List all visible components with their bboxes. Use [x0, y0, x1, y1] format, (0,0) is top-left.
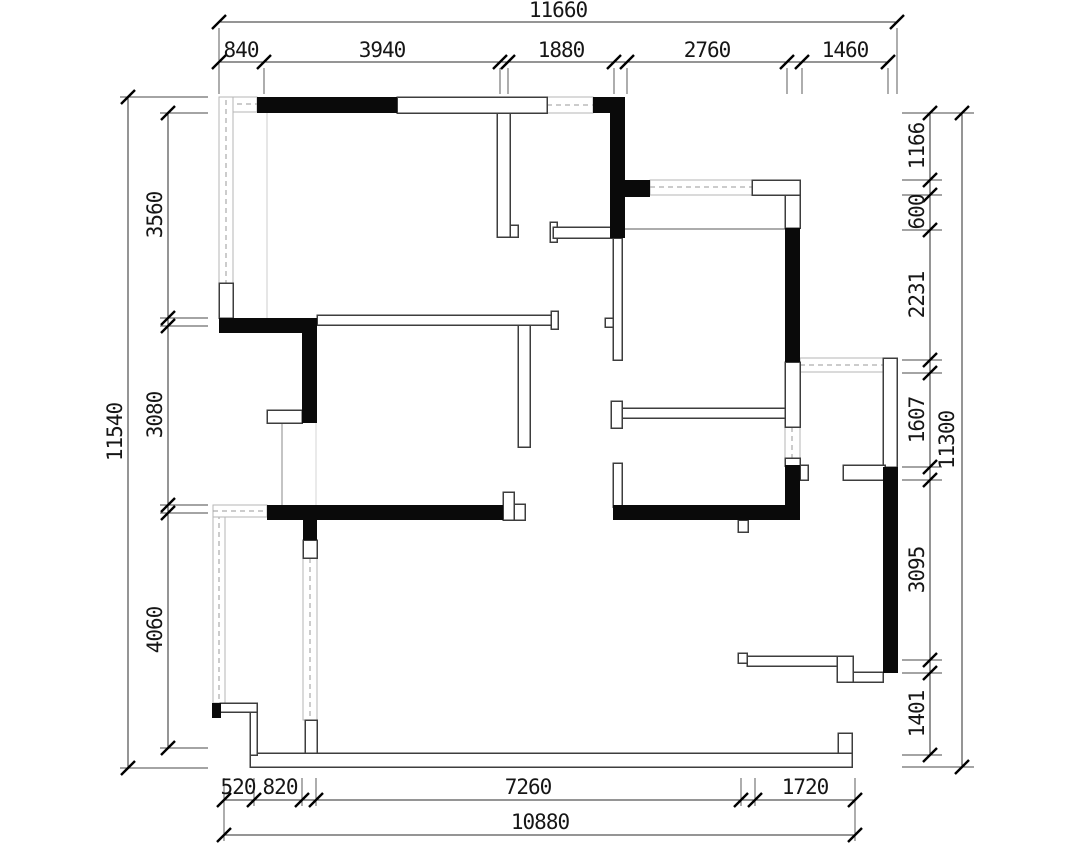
dim-label-bottom-overall: 10880 — [511, 810, 570, 834]
wall-black — [593, 97, 625, 113]
floor-plan-page: 11660 840 3940 1880 2760 1460 11540 3560… — [0, 0, 1080, 866]
dimension-left: 11540 3560 3080 4060 — [103, 90, 208, 775]
wall-white — [611, 401, 622, 428]
window-segment — [650, 180, 752, 195]
dim-label-left-overall: 11540 — [103, 403, 127, 462]
dim-label: 1460 — [822, 38, 869, 62]
wall-white — [785, 458, 800, 466]
dim-label: 840 — [224, 38, 259, 62]
wall-white — [837, 656, 853, 682]
dimension-right: 1166 600 2231 1607 3095 1401 11300 — [902, 106, 974, 774]
dimension-top: 11660 840 3940 1880 2760 1460 — [212, 0, 904, 94]
wall-white — [838, 733, 852, 755]
wall-white — [613, 463, 622, 507]
wall-white — [250, 712, 257, 755]
dim-label: 3940 — [359, 38, 406, 62]
dimension-bottom: 520 820 7260 1720 10880 — [217, 775, 862, 842]
wall-black — [613, 505, 798, 520]
wall-white — [220, 703, 257, 712]
wall-white — [843, 465, 885, 480]
dim-label: 2760 — [684, 38, 731, 62]
dim-label: 3095 — [905, 547, 929, 594]
wall-white — [497, 113, 510, 237]
wall-white — [785, 195, 800, 228]
wall-white — [303, 540, 317, 558]
dim-label: 2231 — [905, 271, 929, 318]
wall-black — [302, 333, 317, 423]
wall-white — [853, 672, 883, 682]
dim-label: 1401 — [905, 690, 929, 737]
dim-label: 7260 — [505, 775, 552, 799]
wall-black — [785, 228, 800, 362]
dim-label: 1607 — [905, 396, 929, 443]
dim-label: 4060 — [143, 606, 167, 653]
wall-black — [212, 703, 221, 718]
wall-black — [267, 505, 503, 520]
dim-label: 1166 — [905, 122, 929, 169]
floor-plan-canvas: 11660 840 3940 1880 2760 1460 11540 3560… — [0, 0, 1080, 866]
wall-white — [503, 492, 514, 520]
wall-white — [738, 653, 747, 663]
dim-label-right-overall: 11300 — [935, 411, 959, 470]
wall-white — [553, 227, 613, 238]
wall-black — [610, 113, 625, 238]
wall-black — [883, 467, 898, 673]
dim-label: 820 — [263, 775, 298, 799]
wall-white — [622, 408, 785, 418]
dim-label: 1720 — [782, 775, 829, 799]
wall-white — [518, 325, 530, 447]
wall-white — [305, 720, 317, 753]
wall-white — [551, 311, 558, 329]
wall-white — [883, 358, 897, 467]
wall-black — [303, 520, 317, 540]
wall-white — [800, 465, 808, 480]
wall-white — [397, 97, 547, 113]
wall-white — [747, 656, 837, 666]
dim-label: 1880 — [538, 38, 585, 62]
dim-label: 3560 — [143, 191, 167, 238]
wall-white — [514, 504, 525, 520]
wall-white — [267, 410, 302, 423]
dim-label: 600 — [905, 194, 929, 229]
dim-label-top-overall: 11660 — [529, 0, 588, 22]
wall-white — [752, 180, 800, 195]
wall-white — [738, 520, 748, 532]
wall-white — [613, 238, 622, 360]
wall-white — [317, 315, 557, 325]
wall-black — [785, 465, 800, 520]
wall-black — [219, 318, 317, 333]
wall-white — [250, 753, 852, 767]
wall-white — [785, 362, 800, 427]
wall-black — [625, 180, 650, 197]
wall-white — [510, 225, 518, 237]
wall-black — [257, 97, 397, 113]
dim-label: 520 — [221, 775, 256, 799]
wall-white — [219, 283, 233, 318]
wall-white — [605, 318, 613, 327]
dim-label: 3080 — [143, 391, 167, 438]
